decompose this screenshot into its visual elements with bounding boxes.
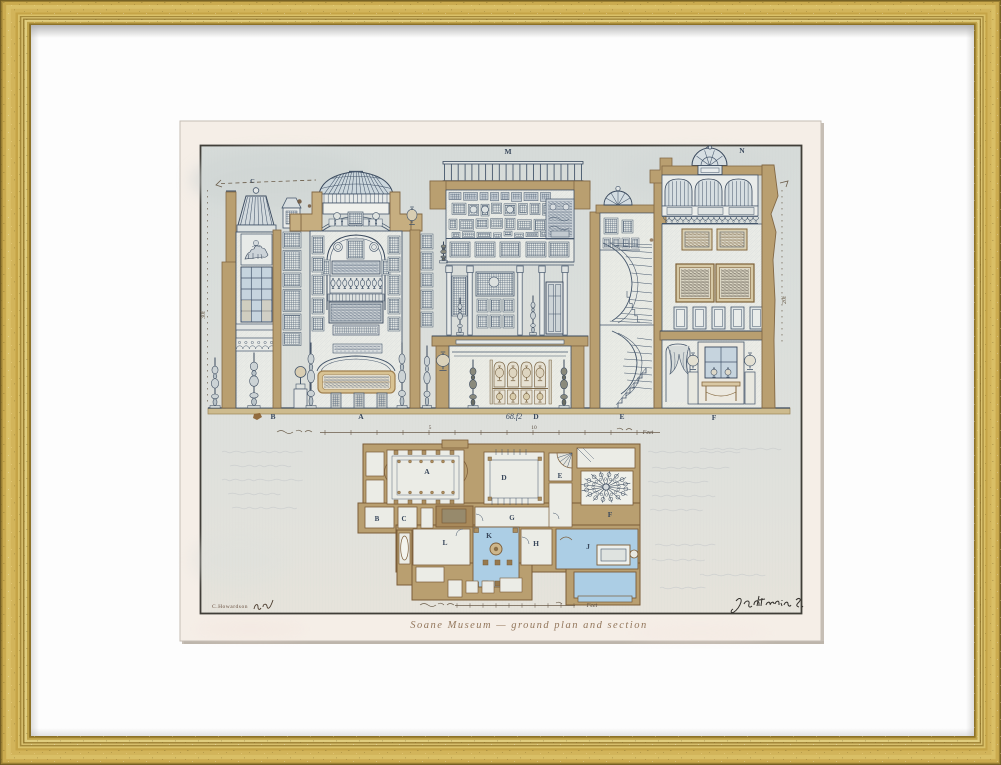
svg-text:5: 5: [429, 425, 432, 431]
svg-text:G: G: [509, 514, 515, 522]
svg-text:B: B: [375, 515, 380, 523]
svg-text:F: F: [712, 413, 717, 422]
svg-text:C.Howardson: C.Howardson: [212, 604, 248, 610]
svg-text:F: F: [608, 510, 613, 519]
svg-text:Soane Museum — ground plan and: Soane Museum — ground plan and section: [410, 620, 647, 631]
svg-text:20f: 20f: [781, 296, 788, 304]
svg-text:D: D: [533, 412, 539, 421]
svg-text:K: K: [486, 531, 492, 540]
svg-text:A: A: [358, 412, 364, 421]
svg-text:E: E: [619, 412, 624, 421]
svg-text:A: A: [424, 467, 430, 476]
svg-text:Feet: Feet: [642, 430, 654, 436]
svg-text:C: C: [401, 515, 406, 523]
svg-text:E: E: [558, 472, 563, 480]
svg-text:M: M: [504, 147, 511, 156]
svg-text:N: N: [739, 146, 745, 155]
svg-text:H: H: [533, 539, 539, 548]
svg-text:68.f2: 68.f2: [506, 412, 522, 421]
svg-text:Feet: Feet: [586, 603, 598, 609]
svg-text:J: J: [586, 542, 590, 551]
svg-text:C: C: [250, 178, 255, 185]
svg-text:10: 10: [531, 425, 537, 431]
svg-text:B: B: [270, 412, 275, 421]
svg-text:L: L: [442, 538, 447, 547]
svg-text:30f: 30f: [200, 311, 207, 319]
svg-text:D: D: [501, 473, 507, 482]
